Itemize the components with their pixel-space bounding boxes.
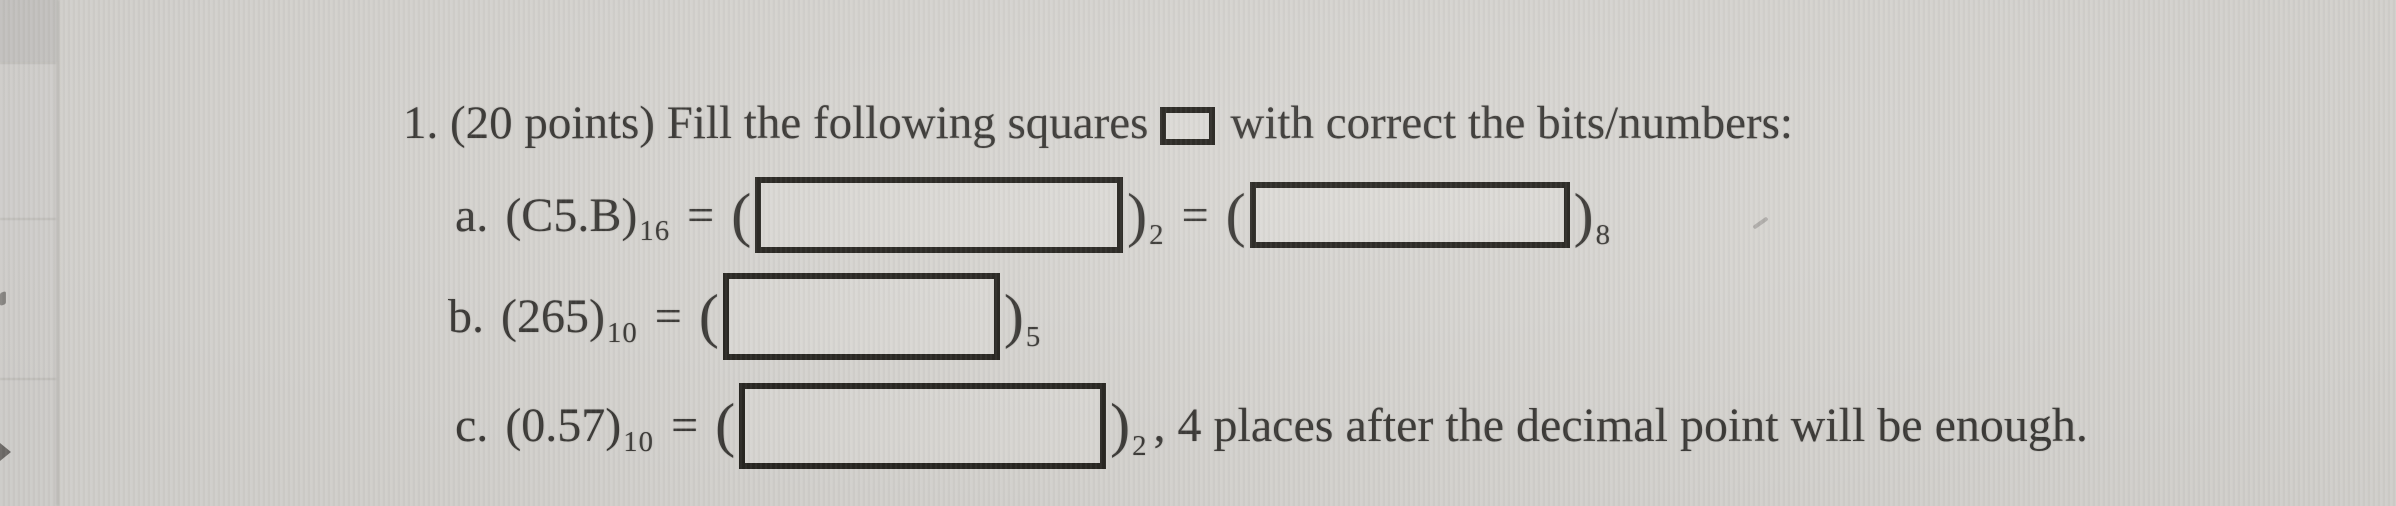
part-a-given-value: (C5.B) [505, 189, 637, 242]
part-b-given-value: (265) [501, 290, 605, 343]
answer-box-b-base5 [723, 273, 1000, 360]
part-a-label: a. [455, 188, 488, 243]
strip-mark-arrow [0, 443, 11, 461]
left-panel-strip [0, 0, 58, 506]
part-c-label: c. [455, 398, 488, 453]
open-paren-base5: ( [699, 282, 719, 351]
equals-sign: = [671, 398, 698, 453]
close-paren-binary: )2 [1127, 181, 1164, 250]
answer-box-a-binary [755, 177, 1123, 253]
part-c-given-base-subscript: 10 [623, 426, 654, 458]
open-paren-binary: ( [731, 181, 751, 250]
part-a-given-base-subscript: 16 [639, 215, 670, 247]
title-text-after: with correct the bits/numbers: [1230, 96, 1793, 150]
part-b-label: b. [448, 289, 484, 344]
left-corner-patch [0, 0, 58, 62]
strip-divider-line [0, 378, 58, 380]
strip-divider-line [0, 218, 58, 220]
part-a-given: (C5.B)16 [505, 188, 670, 243]
part-c-given-value: (0.57) [505, 399, 621, 452]
part-c-given: (0.57)10 [505, 398, 654, 453]
open-paren-binary-c: ( [715, 391, 735, 460]
octal-base-subscript: 8 [1596, 219, 1611, 251]
strip-mark-dash [0, 291, 6, 306]
question-title: 1. (20 points) Fill the following square… [403, 96, 1793, 150]
answer-box-c-binary [739, 383, 1106, 469]
close-paren-octal: )8 [1574, 181, 1611, 250]
panel-edge-divider [56, 0, 59, 506]
title-text-before: 1. (20 points) Fill the following square… [403, 96, 1148, 150]
binary-base-subscript-c: 2 [1132, 430, 1147, 462]
smudge-mark [1752, 216, 1768, 229]
equals-sign: = [655, 289, 682, 344]
open-paren-octal: ( [1226, 181, 1246, 250]
close-paren-base5: )5 [1004, 282, 1041, 351]
part-a-row: a. (C5.B)16 = ( )2 = ( )8 [455, 168, 1611, 262]
square-symbol-icon [1160, 107, 1215, 145]
decimal-places-note: , 4 places after the decimal point will … [1154, 398, 2088, 453]
answer-box-a-octal [1250, 182, 1570, 248]
strip-divider-line [0, 62, 58, 64]
close-paren-binary-c: )2 [1110, 391, 1147, 460]
binary-base-subscript: 2 [1149, 219, 1164, 251]
part-c-row: c. (0.57)10 = ( )2 , 4 places after the … [455, 379, 2088, 472]
part-b-given-base-subscript: 10 [607, 317, 638, 349]
part-b-row: b. (265)10 = ( )5 [448, 270, 1041, 363]
equals-sign: = [1182, 188, 1209, 243]
part-b-given: (265)10 [501, 289, 638, 344]
base5-subscript: 5 [1026, 321, 1041, 353]
equals-sign: = [687, 188, 714, 243]
